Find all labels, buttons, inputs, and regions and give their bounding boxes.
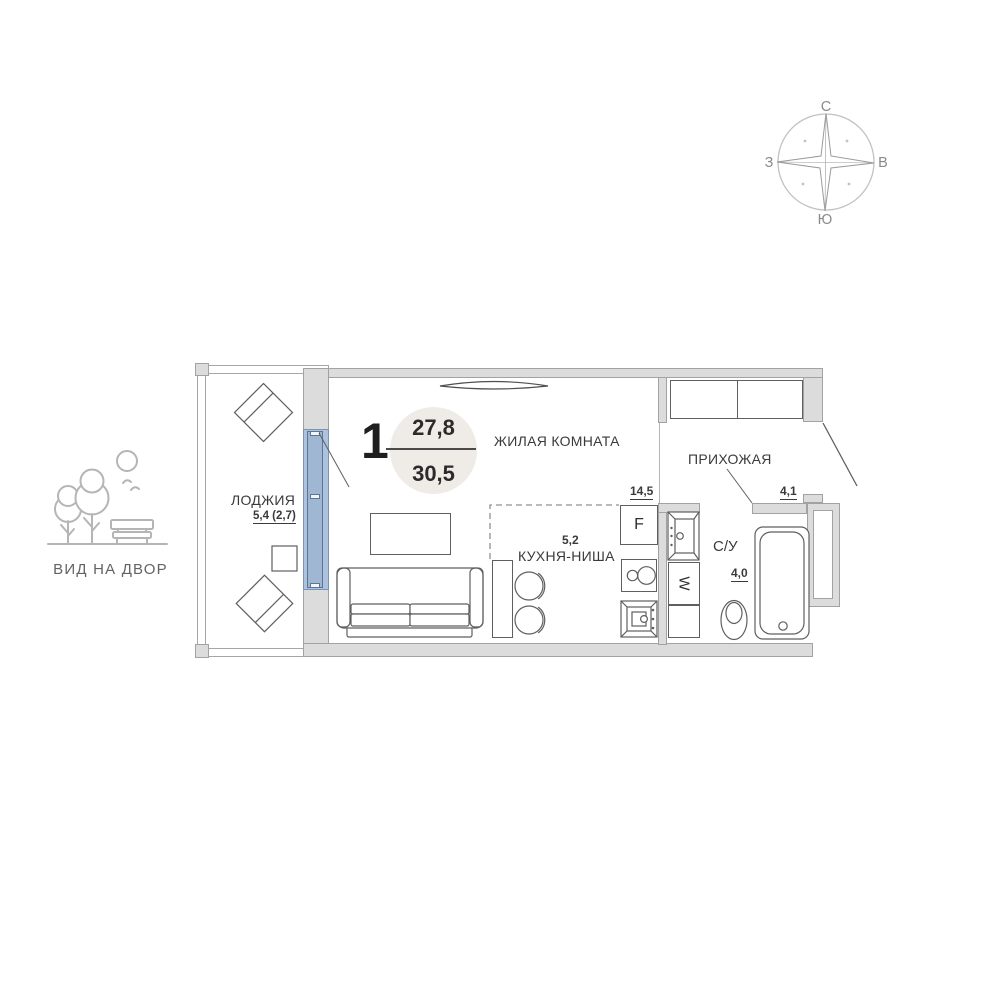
chair-backrest <box>538 607 545 633</box>
total-area-value: 30,5 <box>390 461 477 487</box>
bath-cabinet <box>668 605 700 638</box>
loggia-area: 5,4 (2,7) <box>253 510 296 524</box>
balcony-door-joint <box>310 494 320 499</box>
compass-north-label: С <box>821 99 831 115</box>
faucet-icon <box>677 533 684 540</box>
window-icon <box>440 382 548 390</box>
cooktop <box>621 559 657 592</box>
wall-hall-divider <box>658 377 667 423</box>
living-room-label: ЖИЛАЯ КОМНАТА <box>494 433 620 449</box>
balcony-door-joint <box>310 431 320 436</box>
sofa <box>337 568 483 637</box>
unit-number: 1 <box>361 416 389 466</box>
bird-icon <box>131 487 139 490</box>
wall-bottom <box>303 643 813 657</box>
unit-area-badge: 27,8 30,5 <box>390 407 477 494</box>
floorplan-page: С В Ю З ВИД НА ДВОР <box>0 0 1000 1000</box>
compass-south-label: Ю <box>818 212 833 228</box>
tree-trunk <box>84 514 99 544</box>
zone-boundary-line <box>659 423 660 505</box>
wall-corner-block <box>195 363 209 376</box>
fridge-label: F <box>621 506 657 544</box>
washing-machine: W <box>668 562 700 605</box>
loggia-label: ЛОДЖИЯ <box>231 492 295 508</box>
bathroom-label: С/У <box>713 538 738 555</box>
wardrobe-divider <box>737 381 738 418</box>
faucet-icon <box>641 616 648 623</box>
hallway-leader-line <box>727 469 752 503</box>
hallway-area: 4,1 <box>780 484 797 500</box>
wall-top <box>303 368 823 378</box>
washer-label: W <box>664 569 705 599</box>
kitchen-table <box>492 560 513 638</box>
chair-backrest <box>538 573 545 599</box>
courtyard-icon <box>45 437 175 549</box>
sun-icon <box>117 451 137 471</box>
fridge: F <box>620 505 658 545</box>
area-fraction-line <box>386 448 476 450</box>
chair <box>515 606 543 634</box>
shaft-opening <box>813 510 833 599</box>
entry-door-swing <box>823 423 857 486</box>
bathroom-area: 4,0 <box>731 566 748 582</box>
wardrobe <box>670 380 803 419</box>
living-table <box>370 513 451 555</box>
wall-corner-block <box>195 644 209 658</box>
compass-west-label: З <box>765 155 774 171</box>
bird-icon <box>123 480 131 483</box>
compass-east-label: В <box>878 155 888 171</box>
living-room-area: 14,5 <box>630 484 653 500</box>
courtyard-view-label: ВИД НА ДВОР <box>38 561 183 578</box>
wall-entry-side <box>803 377 823 422</box>
balcony-door-leaf <box>307 431 323 588</box>
tree-trunk <box>61 521 74 544</box>
toilet <box>721 601 747 640</box>
hallway-label: ПРИХОЖАЯ <box>688 451 772 467</box>
drain-icon <box>779 622 787 630</box>
living-area-value: 27,8 <box>390 415 477 441</box>
kitchen-sink <box>621 601 657 637</box>
kitchen-area: 5,2 <box>562 533 579 547</box>
kitchen-label: КУХНЯ-НИША <box>518 548 615 564</box>
balcony-door-joint <box>310 583 320 588</box>
wall-bath-top-left <box>658 503 700 513</box>
wall-bath-top-right <box>752 503 807 514</box>
chair <box>515 572 543 600</box>
wall-loggia-pier-top <box>303 368 329 430</box>
compass-icon: С В Ю З <box>755 92 900 237</box>
bench-icon <box>111 520 153 529</box>
bathtub <box>755 527 809 639</box>
wall-notch <box>803 494 823 503</box>
bathroom-sink <box>668 512 699 560</box>
